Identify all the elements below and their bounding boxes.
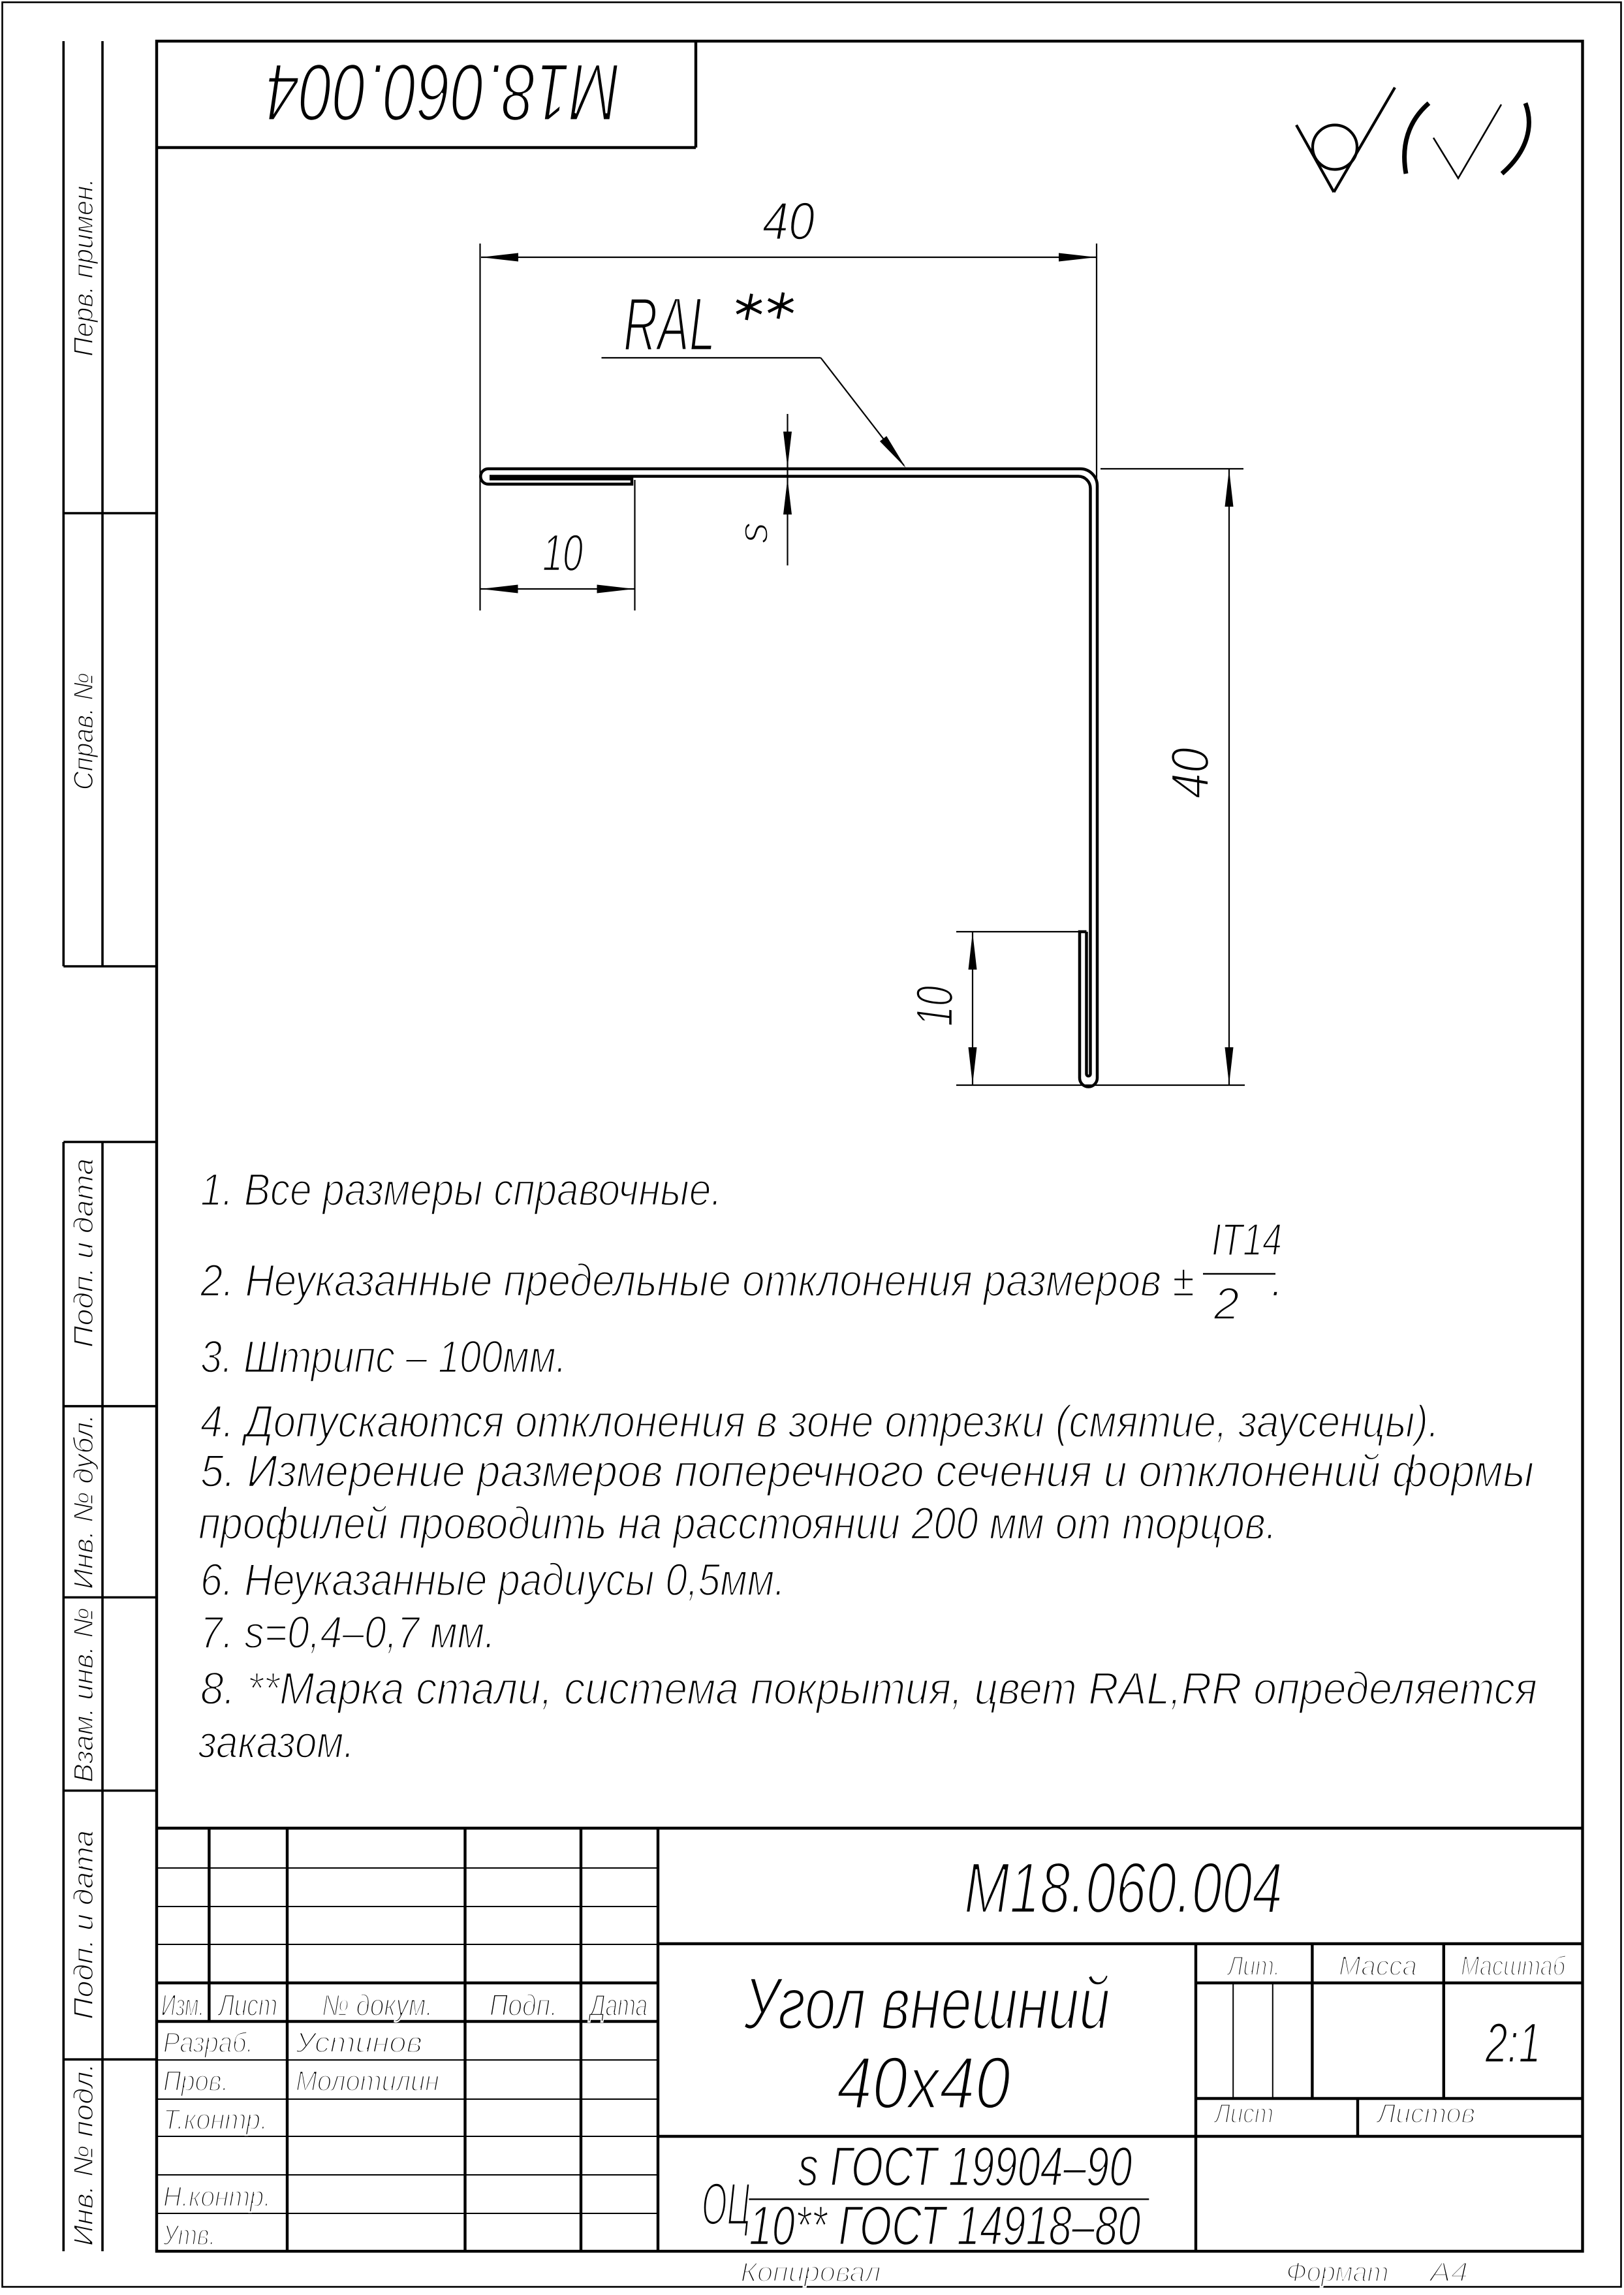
svg-text:Инв. № дубл.: Инв. № дубл. xyxy=(68,1414,99,1589)
svg-text:7. s=0,4–0,7 мм.: 7. s=0,4–0,7 мм. xyxy=(200,1607,495,1658)
svg-text:Перв. примен.: Перв. примен. xyxy=(68,178,99,356)
svg-text:Устинов: Устинов xyxy=(295,2027,422,2059)
svg-text:Угол внешний: Угол внешний xyxy=(743,1962,1110,2044)
svg-text:Подп.: Подп. xyxy=(490,1988,557,2022)
svg-text:Формат: Формат xyxy=(1287,2256,1389,2287)
svg-text:40: 40 xyxy=(762,192,815,251)
svg-text:4. Допускаются отклонения в з: 4. Допускаются отклонения в зоне отрезки… xyxy=(200,1396,1439,1447)
svg-text:М18.060.004: М18.060.004 xyxy=(266,47,620,137)
svg-text:А4: А4 xyxy=(1428,2256,1468,2287)
svg-text:2: 2 xyxy=(1213,1278,1240,1329)
svg-text:Листов: Листов xyxy=(1375,2098,1475,2129)
svg-text:ОЦ: ОЦ xyxy=(702,2171,751,2238)
svg-text:40: 40 xyxy=(1161,748,1220,799)
svg-text:8. **Марка стали, система пок: 8. **Марка стали, система покрытия, цвет… xyxy=(200,1663,1537,1714)
svg-text:10** ГОСТ 14918–80: 10** ГОСТ 14918–80 xyxy=(749,2195,1140,2257)
svg-text:№ докум.: № докум. xyxy=(322,1988,433,2022)
svg-text:RAL: RAL xyxy=(623,282,715,367)
svg-text:Подп. и дата: Подп. и дата xyxy=(68,1158,99,1348)
svg-text:Н.контр.: Н.контр. xyxy=(163,2181,271,2213)
svg-text:Дата: Дата xyxy=(587,1988,648,2022)
svg-text:s: s xyxy=(728,522,777,544)
svg-text:40х40: 40х40 xyxy=(837,2042,1010,2124)
svg-text:Лист: Лист xyxy=(1213,2098,1273,2129)
svg-text:профилей проводить на расстоян: профилей проводить на расстоянии 200 мм … xyxy=(198,1498,1277,1549)
svg-text:Инв. № подл.: Инв. № подл. xyxy=(68,2063,99,2246)
svg-text:10: 10 xyxy=(905,986,963,1026)
svg-text:2:1: 2:1 xyxy=(1485,2012,1541,2075)
svg-text:.: . xyxy=(1271,1255,1283,1306)
svg-text:Масса: Масса xyxy=(1339,1950,1417,1981)
svg-text:Копировал: Копировал xyxy=(741,2256,881,2287)
svg-text:Масштаб: Масштаб xyxy=(1461,1950,1566,1981)
svg-text:Изм.: Изм. xyxy=(161,1988,204,2022)
svg-text:Утв.: Утв. xyxy=(163,2219,215,2251)
svg-text:3. Штрипс – 100мм.: 3. Штрипс – 100мм. xyxy=(200,1331,567,1382)
svg-text:заказом.: заказом. xyxy=(198,1717,354,1767)
svg-text:Пров.: Пров. xyxy=(163,2065,228,2097)
svg-text:s ГОСТ 19904–90: s ГОСТ 19904–90 xyxy=(798,2136,1132,2198)
svg-text:Лит.: Лит. xyxy=(1226,1950,1280,1981)
svg-text:Справ. №: Справ. № xyxy=(68,673,99,790)
svg-text:Т.контр.: Т.контр. xyxy=(163,2104,268,2136)
svg-text:5. Измерение размеров попереч: 5. Измерение размеров поперечного сечени… xyxy=(200,1446,1534,1496)
svg-text:Молотилин: Молотилин xyxy=(296,2065,439,2097)
svg-text:2. Неуказанные предельные отк: 2. Неуказанные предельные отклонения раз… xyxy=(200,1255,1195,1306)
svg-text:6. Неуказанные радиусы 0,5мм.: 6. Неуказанные радиусы 0,5мм. xyxy=(200,1555,785,1606)
svg-text:М18.060.004: М18.060.004 xyxy=(964,1848,1283,1929)
svg-text:Подп. и дата: Подп. и дата xyxy=(68,1830,99,2019)
svg-text:Разраб.: Разраб. xyxy=(163,2027,253,2059)
svg-text:10: 10 xyxy=(542,524,583,582)
svg-text:1. Все размеры справочные.: 1. Все размеры справочные. xyxy=(200,1164,722,1215)
svg-text:Взам. инв. №: Взам. инв. № xyxy=(68,1607,99,1782)
svg-text:Лист: Лист xyxy=(217,1988,277,2022)
